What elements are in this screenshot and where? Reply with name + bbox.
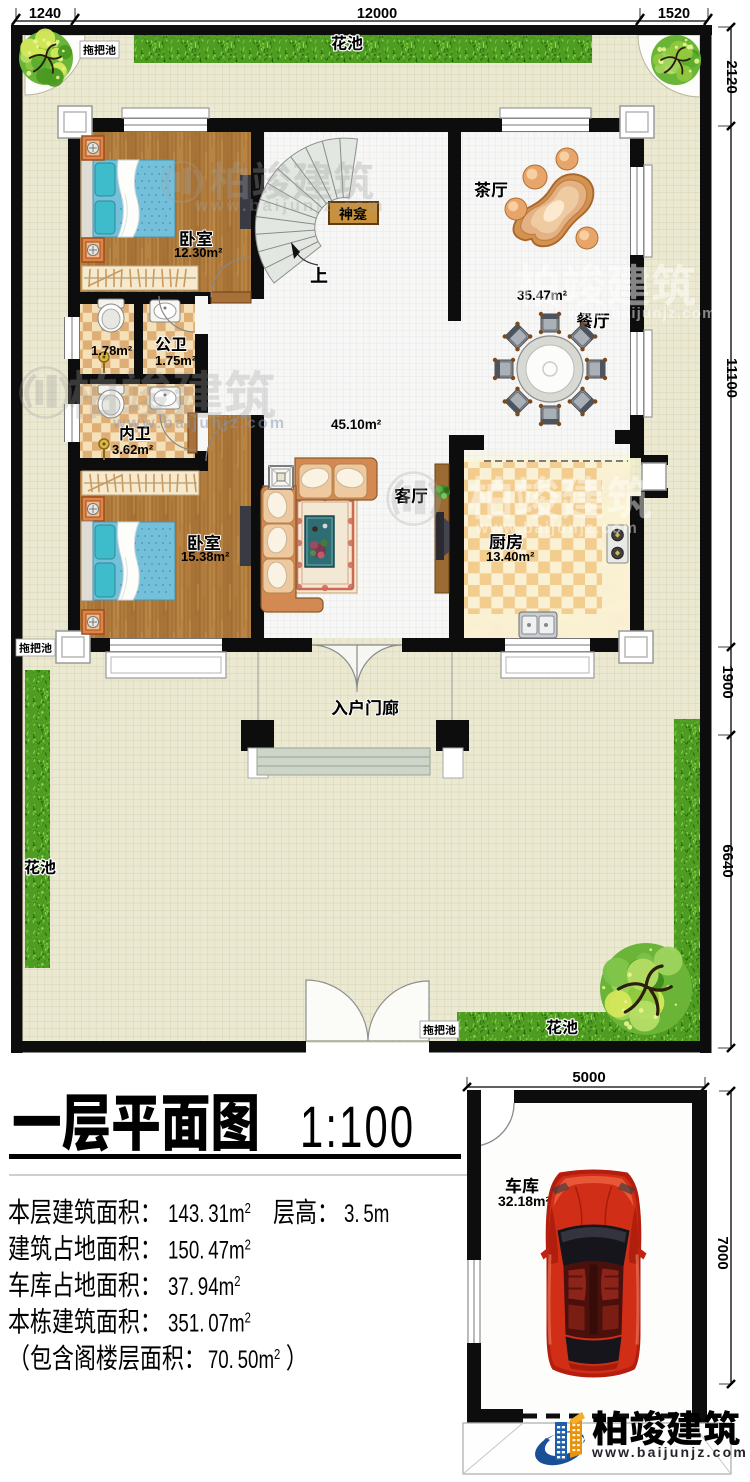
svg-text:1.78m²: 1.78m²	[91, 343, 133, 358]
svg-text:3.62m²: 3.62m²	[112, 442, 154, 457]
svg-text:1900: 1900	[719, 665, 736, 698]
svg-text:www.baijunjz.com: www.baijunjz.com	[194, 197, 385, 215]
svg-text:www.baijunjz.com: www.baijunjz.com	[475, 520, 639, 537]
svg-text:www.baijunjz.com: www.baijunjz.com	[591, 1444, 748, 1460]
svg-text:www.baijunjz.com: www.baijunjz.com	[112, 415, 286, 432]
svg-text:150. 47m2: 150. 47m2	[168, 1236, 251, 1264]
svg-text:www.baijunjz.com: www.baijunjz.com	[567, 305, 717, 322]
svg-text:2120: 2120	[723, 60, 740, 93]
svg-text:351. 07m2: 351. 07m2	[168, 1309, 251, 1337]
svg-text:13.40m²: 13.40m²	[486, 549, 535, 564]
svg-text:1520: 1520	[658, 6, 690, 22]
svg-text:1:100: 1:100	[300, 1094, 415, 1159]
svg-text:12.30m²: 12.30m²	[174, 245, 223, 260]
svg-text:6640: 6640	[719, 844, 736, 877]
svg-text:1240: 1240	[29, 6, 61, 22]
svg-text:7000: 7000	[714, 1236, 731, 1269]
svg-text:143. 31m2: 143. 31m2	[168, 1199, 251, 1227]
svg-text:70. 50m2: 70. 50m2	[208, 1345, 280, 1373]
svg-text:32.18m²: 32.18m²	[498, 1193, 550, 1209]
svg-text:37. 94m2: 37. 94m2	[168, 1272, 240, 1300]
svg-text:3. 5m: 3. 5m	[344, 1199, 389, 1227]
svg-text:12000: 12000	[357, 6, 397, 22]
svg-text:45.10m²: 45.10m²	[331, 417, 382, 432]
svg-text:5000: 5000	[572, 1069, 605, 1086]
svg-text:1.75m²: 1.75m²	[155, 353, 197, 368]
svg-text:15.38m²: 15.38m²	[181, 549, 230, 564]
svg-text:11100: 11100	[723, 358, 740, 398]
